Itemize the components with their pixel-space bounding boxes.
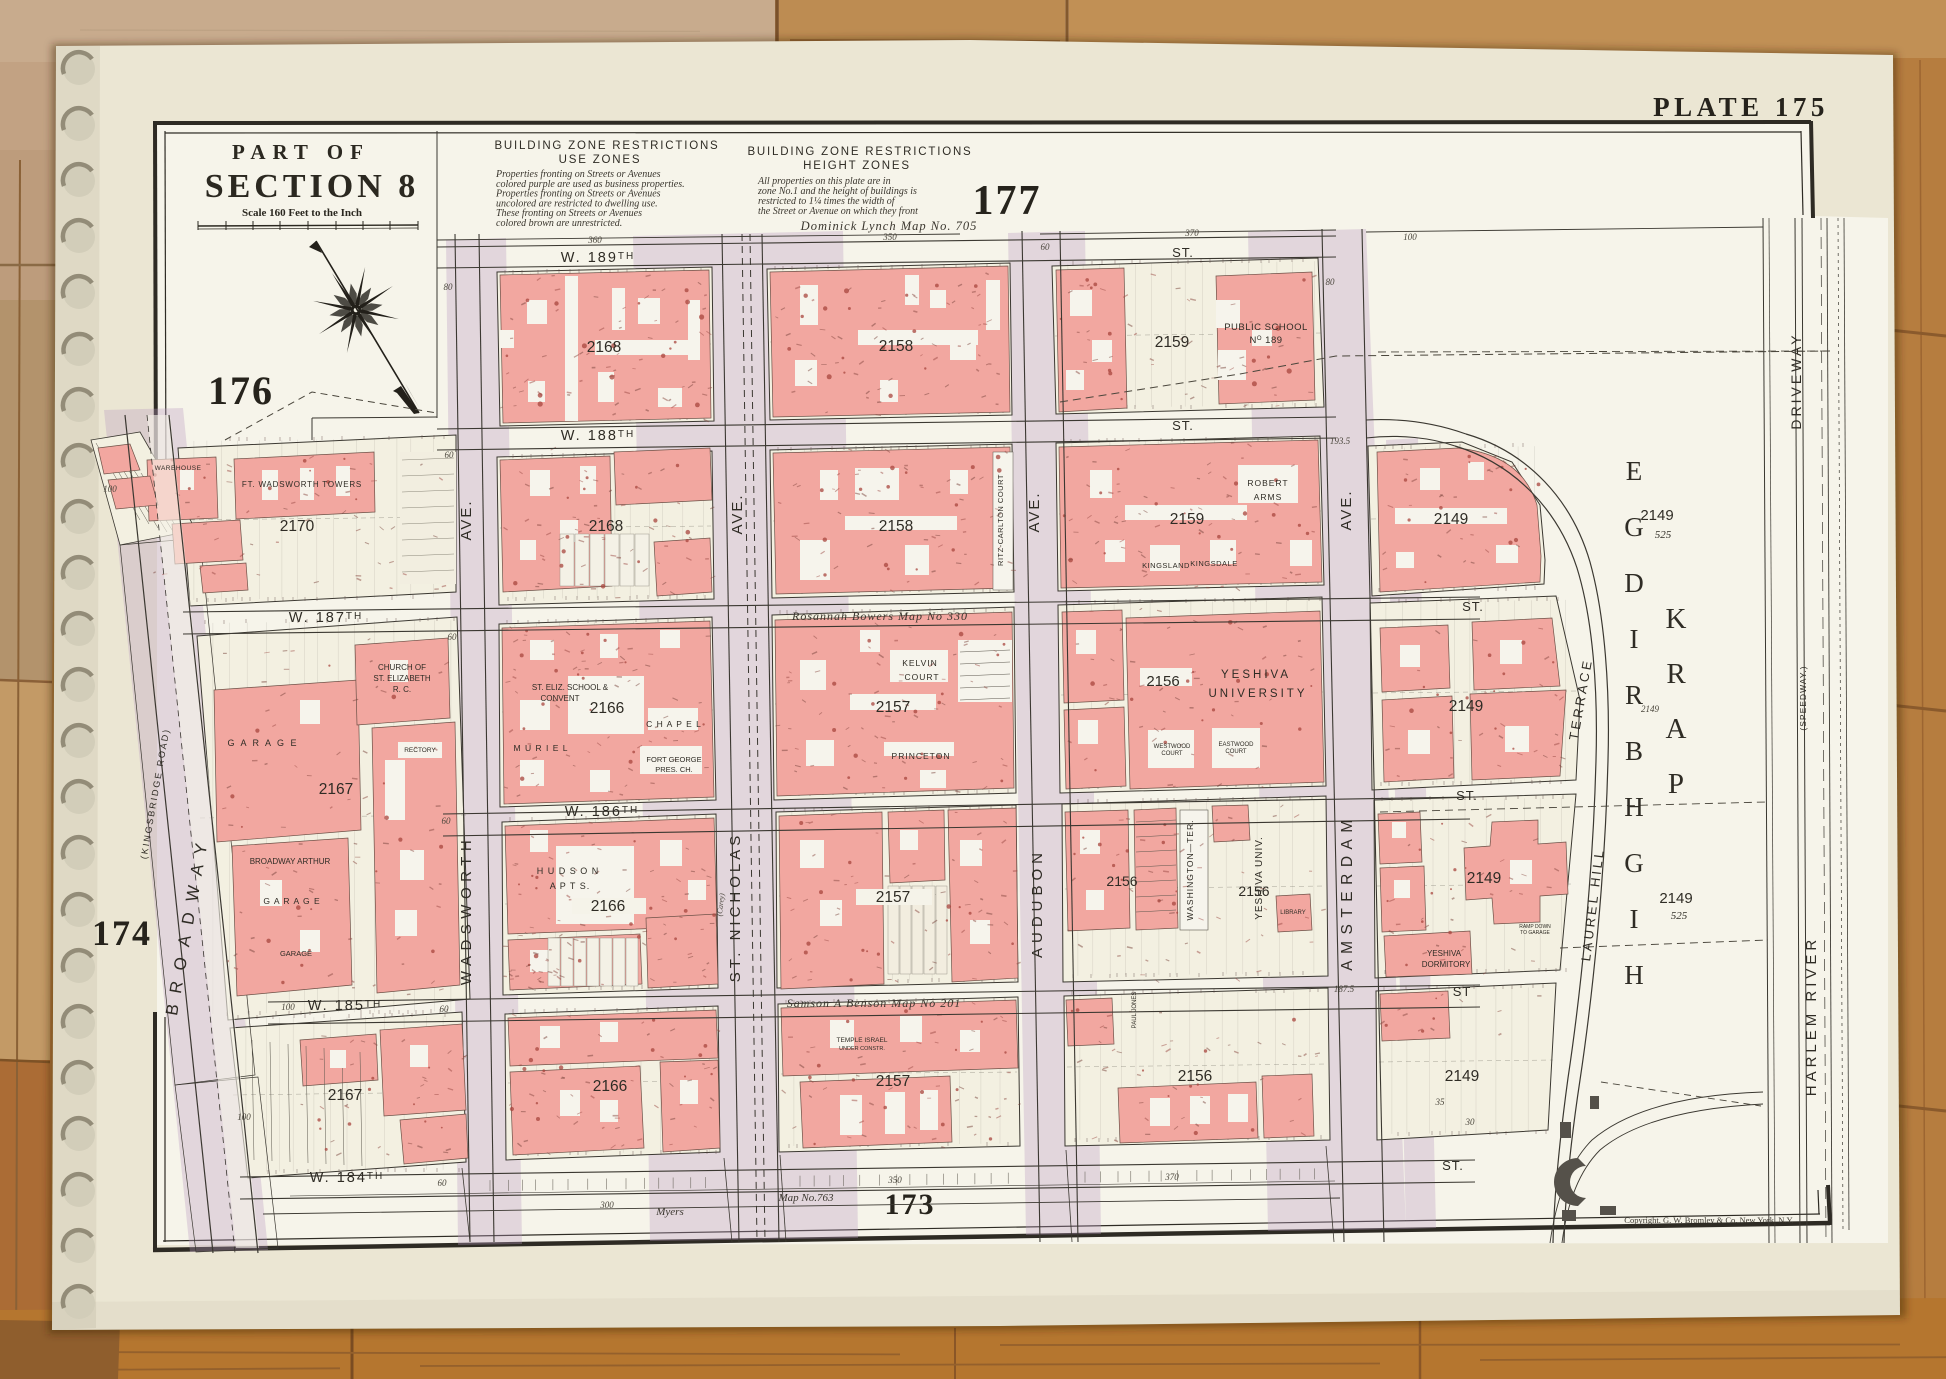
svg-text:KINGSDALE: KINGSDALE (1190, 559, 1237, 568)
svg-text:DORMITORY: DORMITORY (1422, 960, 1471, 969)
svg-text:CHURCH OF: CHURCH OF (378, 663, 426, 672)
svg-text:ROBERT: ROBERT (1247, 478, 1288, 488)
svg-text:A: A (1666, 713, 1687, 745)
svg-text:R. C.: R. C. (393, 685, 411, 694)
svg-text:ARMS: ARMS (1254, 492, 1283, 502)
svg-text:WAREHOUSE: WAREHOUSE (155, 465, 202, 472)
svg-text:H: H (1624, 792, 1644, 822)
svg-text:RITZ-CARLTON COURT: RITZ-CARLTON COURT (996, 474, 1005, 566)
svg-text:the Street or Avenue on which: the Street or Avenue on which they front (758, 206, 918, 217)
svg-text:Map No.763: Map No.763 (778, 1192, 835, 1204)
svg-text:350: 350 (882, 232, 897, 242)
svg-text:H U D S O N: H U D S O N (537, 866, 600, 876)
svg-text:2158: 2158 (879, 518, 913, 535)
svg-text:2149: 2149 (1445, 1068, 1479, 1085)
svg-text:(SPEEDWAY.): (SPEEDWAY.) (1798, 665, 1808, 730)
svg-text:176: 176 (208, 368, 274, 413)
svg-text:Scale 160 Feet to the Inch: Scale 160 Feet to the Inch (242, 207, 362, 219)
svg-text:WASHINGTON—TER.: WASHINGTON—TER. (1185, 820, 1195, 921)
svg-text:ST. ELIZABETH: ST. ELIZABETH (373, 674, 431, 683)
svg-text:HEIGHT ZONES: HEIGHT ZONES (803, 160, 911, 172)
svg-text:E: E (1626, 456, 1643, 486)
svg-text:80: 80 (1326, 277, 1336, 287)
svg-text:35: 35 (1435, 1097, 1446, 1107)
svg-text:174: 174 (92, 913, 152, 953)
svg-text:G: G (1624, 512, 1644, 542)
svg-text:K: K (1666, 603, 1687, 635)
svg-text:2157: 2157 (876, 889, 910, 906)
svg-text:ST.: ST. (1172, 245, 1194, 260)
svg-text:A P T S.: A P T S. (550, 881, 591, 891)
svg-text:ST. NICHOLAS: ST. NICHOLAS (727, 832, 744, 983)
svg-text:ST. ELIZ. SCHOOL &: ST. ELIZ. SCHOOL & (532, 683, 609, 692)
svg-text:PUBLIC SCHOOL: PUBLIC SCHOOL (1224, 322, 1308, 333)
svg-text:100: 100 (103, 484, 117, 494)
svg-text:AVE.: AVE. (729, 493, 746, 534)
svg-text:PRINCETON: PRINCETON (892, 751, 951, 761)
svg-text:TO GARAGE: TO GARAGE (1520, 930, 1550, 936)
svg-text:BUILDING ZONE RESTRICTIONS: BUILDING ZONE RESTRICTIONS (494, 140, 719, 152)
svg-text:2156: 2156 (1178, 1068, 1212, 1085)
svg-text:60: 60 (1041, 242, 1051, 252)
svg-text:360: 360 (587, 235, 602, 245)
svg-text:I: I (1630, 624, 1639, 654)
svg-text:193.5: 193.5 (1330, 436, 1351, 446)
svg-text:525: 525 (1671, 910, 1688, 922)
svg-text:2159: 2159 (1155, 334, 1189, 351)
svg-text:COURT: COURT (1225, 749, 1247, 755)
svg-text:370: 370 (1164, 1172, 1179, 1182)
svg-text:177: 177 (973, 178, 1042, 224)
svg-text:60: 60 (438, 1178, 448, 1188)
svg-text:YESHIVA: YESHIVA (1221, 669, 1291, 681)
svg-text:RECTORY: RECTORY (404, 747, 436, 754)
svg-text:2166: 2166 (593, 1078, 627, 1095)
svg-text:100: 100 (1403, 232, 1417, 242)
svg-text:2157: 2157 (876, 1073, 910, 1090)
svg-text:COURT: COURT (1161, 751, 1183, 757)
svg-text:60: 60 (440, 1004, 450, 1014)
svg-text:BUILDING ZONE RESTRICTIONS: BUILDING ZONE RESTRICTIONS (747, 146, 972, 158)
svg-text:P: P (1668, 768, 1684, 800)
svg-text:2158: 2158 (879, 338, 913, 355)
svg-text:2167: 2167 (328, 1087, 362, 1104)
svg-text:colored brown are unrestricted: colored brown are unrestricted. (496, 218, 622, 229)
svg-text:ST: ST (1453, 984, 1472, 999)
svg-text:PAUL JONES: PAUL JONES (1132, 992, 1138, 1029)
svg-text:GARAGE: GARAGE (280, 949, 312, 958)
svg-text:2149: 2149 (1467, 870, 1501, 887)
svg-text:2159: 2159 (1170, 511, 1204, 528)
svg-text:100: 100 (237, 1112, 251, 1122)
svg-text:R: R (1666, 658, 1686, 690)
svg-text:WADSWORTH: WADSWORTH (458, 835, 475, 985)
svg-text:G: G (1624, 848, 1644, 878)
svg-text:YESHIVA UNIV.: YESHIVA UNIV. (1254, 836, 1265, 920)
svg-text:EASTWOOD: EASTWOOD (1218, 742, 1254, 748)
svg-text:AVE.: AVE. (1026, 491, 1043, 532)
svg-text:30: 30 (1465, 1117, 1476, 1127)
svg-text:2156: 2156 (1146, 673, 1179, 690)
svg-text:PRES. CH.: PRES. CH. (655, 765, 693, 774)
svg-text:2157: 2157 (876, 699, 910, 716)
svg-text:ST.: ST. (1462, 599, 1484, 614)
svg-text:SECTION 8: SECTION 8 (205, 168, 420, 205)
svg-text:60: 60 (442, 816, 452, 826)
svg-text:2156: 2156 (1106, 873, 1137, 889)
svg-text:2166: 2166 (590, 700, 624, 717)
svg-text:2149: 2149 (1449, 698, 1483, 715)
svg-text:2149: 2149 (1434, 511, 1468, 528)
svg-text:AUDUBON: AUDUBON (1029, 848, 1046, 958)
svg-text:YESHIVA: YESHIVA (1427, 949, 1462, 958)
svg-text:2170: 2170 (280, 518, 315, 535)
svg-text:USE ZONES: USE ZONES (559, 154, 642, 166)
svg-text:AMSTERDAM: AMSTERDAM (1339, 813, 1356, 971)
svg-text:COURT: COURT (904, 672, 939, 682)
svg-text:AVE.: AVE. (458, 499, 475, 540)
svg-text:100: 100 (281, 1002, 295, 1012)
svg-text:300: 300 (599, 1200, 614, 1210)
svg-text:2149: 2149 (1640, 507, 1673, 524)
svg-text:HARLEM RIVER: HARLEM RIVER (1803, 936, 1820, 1097)
svg-text:KELVIN: KELVIN (902, 658, 938, 668)
svg-text:G A R A G E: G A R A G E (227, 738, 298, 748)
svg-text:370: 370 (1184, 228, 1199, 238)
svg-text:FT. WADSWORTH TOWERS: FT. WADSWORTH TOWERS (242, 480, 362, 489)
svg-text:2167: 2167 (319, 781, 353, 798)
svg-text:G A R A G E: G A R A G E (263, 896, 320, 906)
svg-text:UNDER CONSTR.: UNDER CONSTR. (839, 1046, 885, 1052)
svg-text:M U R I E L: M U R I E L (514, 743, 569, 753)
svg-text:CONVENT: CONVENT (540, 694, 579, 703)
svg-text:187.5: 187.5 (1334, 984, 1355, 994)
svg-text:525: 525 (1655, 529, 1672, 541)
svg-text:C H A P E L: C H A P E L (646, 719, 702, 729)
svg-text:2149: 2149 (1641, 704, 1660, 714)
svg-text:KINGSLAND: KINGSLAND (1142, 561, 1190, 570)
svg-text:2156: 2156 (1238, 883, 1269, 899)
svg-text:Myers: Myers (655, 1206, 684, 1218)
svg-text:BROADWAY ARTHUR: BROADWAY ARTHUR (250, 857, 331, 866)
svg-text:I: I (1630, 904, 1639, 934)
svg-text:AVE.: AVE. (1338, 489, 1355, 530)
svg-text:ST.: ST. (1456, 788, 1478, 803)
svg-text:Copyright. G. W. Bromley & Co.: Copyright. G. W. Bromley & Co. New York.… (1624, 1215, 1793, 1225)
svg-text:PLATE 175: PLATE 175 (1653, 92, 1829, 122)
svg-text:2149: 2149 (1659, 890, 1692, 907)
svg-text:2168: 2168 (589, 518, 623, 535)
svg-text:UNIVERSITY: UNIVERSITY (1208, 688, 1307, 700)
svg-text:DRIVEWAY: DRIVEWAY (1788, 332, 1804, 429)
svg-text:LIBRARY: LIBRARY (1280, 910, 1306, 916)
svg-text:Dominick Lynch Map No. 705: Dominick Lynch Map No. 705 (800, 219, 978, 233)
svg-text:WESTWOOD: WESTWOOD (1154, 744, 1191, 750)
svg-text:B: B (1625, 736, 1643, 766)
svg-text:60: 60 (445, 450, 455, 460)
svg-text:2168: 2168 (587, 339, 621, 356)
svg-text:NO 189: NO 189 (1249, 335, 1282, 346)
svg-text:H: H (1624, 960, 1644, 990)
svg-text:350: 350 (887, 1175, 902, 1185)
svg-text:D: D (1624, 568, 1644, 598)
svg-text:FORT GEORGE: FORT GEORGE (646, 755, 701, 764)
svg-text:ST.: ST. (1442, 1158, 1464, 1173)
svg-text:80: 80 (444, 282, 454, 292)
svg-text:60: 60 (448, 632, 458, 642)
svg-text:ST.: ST. (1172, 418, 1194, 433)
svg-text:PART OF: PART OF (232, 140, 370, 164)
svg-text:Rosannah Bowers Map No 330: Rosannah Bowers Map No 330 (791, 609, 968, 623)
svg-text:TEMPLE ISRAEL: TEMPLE ISRAEL (837, 1037, 888, 1044)
svg-text:2166: 2166 (591, 898, 625, 915)
svg-text:Samson A Benson Map No 20: Samson A Benson Map No 201 (787, 996, 962, 1010)
